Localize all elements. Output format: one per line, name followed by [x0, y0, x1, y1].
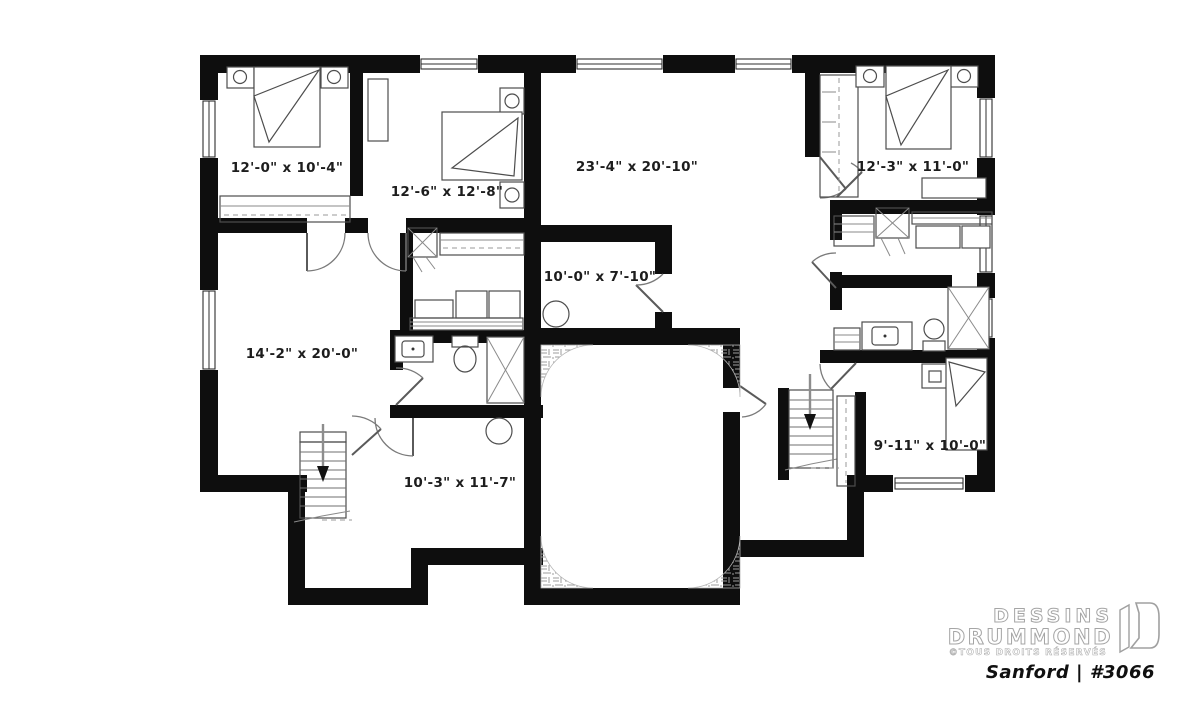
cabinet: [962, 226, 990, 248]
room-label-bedroom-right-lower: 9'-11" x 10'-0": [874, 438, 987, 454]
walkin-closet: [820, 75, 858, 197]
floor-plan-drawing: 12'-0" x 10'-4" 12'-6" x 12'-8" 23'-4" x…: [0, 0, 1200, 711]
room-label-rec-room: 10'-3" x 11'-7": [404, 475, 517, 491]
toilet-tank: [923, 341, 945, 351]
stairs-down-arrow: [804, 374, 816, 430]
cabinet: [916, 226, 960, 248]
furniture-bedroom-right-lower: [922, 358, 987, 450]
nightstand: [922, 364, 948, 388]
washer: [456, 291, 487, 318]
logo-block: DESSINS DRUMMOND ©TOUS DROITS RÉSERVÉS S…: [948, 603, 1159, 683]
furniture-bedroom-left: [220, 67, 350, 222]
room-label-great-room: 23'-4" x 20'-10": [576, 159, 698, 175]
stairs-down-arrow: [317, 424, 329, 482]
water-heater: [543, 301, 569, 327]
rights-notice: ©TOUS DROITS RÉSERVÉS: [949, 646, 1107, 658]
garage-hatch: [541, 345, 740, 588]
closet: [440, 233, 524, 255]
brand-line2: DRUMMOND: [948, 625, 1113, 649]
drummond-logo-mark: [1120, 603, 1159, 652]
dresser: [922, 178, 986, 198]
nightstand: [500, 182, 524, 208]
room-label-utility-room: 10'-0" x 7'-10": [544, 269, 657, 285]
counter: [834, 328, 860, 350]
stairs-right: [785, 374, 855, 486]
cabinet: [415, 300, 453, 318]
toilet-tank: [452, 336, 478, 347]
dresser: [368, 79, 388, 141]
counter: [410, 318, 523, 330]
room-label-bedroom-right: 12'-3" x 11'-0": [857, 159, 970, 175]
room-label-bedroom-left: 12'-0" x 10'-4": [231, 160, 344, 176]
floor-plan-page: 12'-0" x 10'-4" 12'-6" x 12'-8" 23'-4" x…: [0, 0, 1200, 711]
room-label-family-room: 14'-2" x 20'-0": [246, 346, 359, 362]
nightstand: [500, 88, 524, 114]
right-unit-bathroom: [834, 287, 989, 351]
right-unit-laundry: [834, 208, 992, 256]
toilet: [924, 319, 944, 339]
furniture-bedroom-right: [856, 66, 986, 198]
water-heater: [486, 418, 512, 444]
room-label-bedroom-center: 12'-6" x 12'-8": [391, 184, 504, 200]
bathroom-vanity: [862, 322, 912, 350]
toilet: [454, 346, 476, 372]
utility-room-fixtures: [543, 301, 569, 327]
brand-line1: DESSINS: [993, 605, 1113, 627]
dryer: [489, 291, 520, 318]
plan-title: Sanford | #3066: [986, 662, 1155, 683]
